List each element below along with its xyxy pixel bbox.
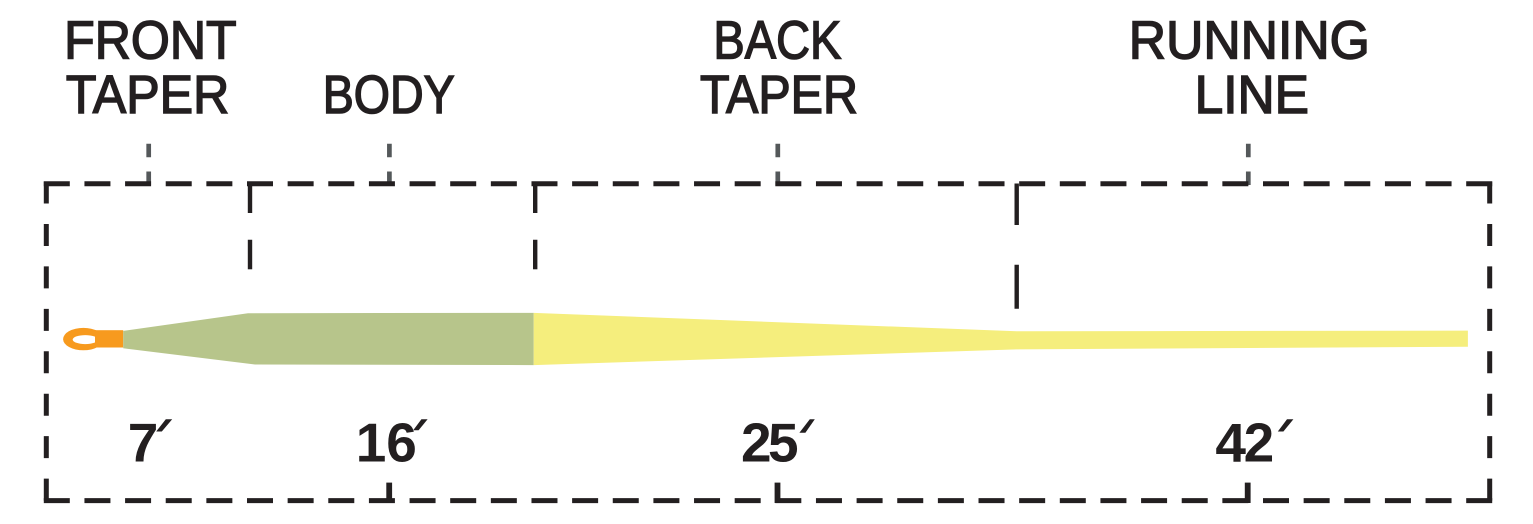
- svg-text:TAPER: TAPER: [66, 66, 229, 125]
- svg-text:RUNNING: RUNNING: [1129, 12, 1370, 71]
- svg-text:7: 7: [128, 411, 159, 473]
- svg-text:25: 25: [741, 411, 799, 473]
- svg-text:BACK: BACK: [713, 12, 841, 71]
- svg-text:16: 16: [356, 411, 417, 473]
- svg-text:42: 42: [1215, 411, 1274, 473]
- svg-text:LINE: LINE: [1195, 66, 1309, 125]
- svg-text:FRONT: FRONT: [64, 12, 237, 71]
- svg-text:TAPER: TAPER: [700, 66, 858, 125]
- svg-text:BODY: BODY: [323, 66, 455, 125]
